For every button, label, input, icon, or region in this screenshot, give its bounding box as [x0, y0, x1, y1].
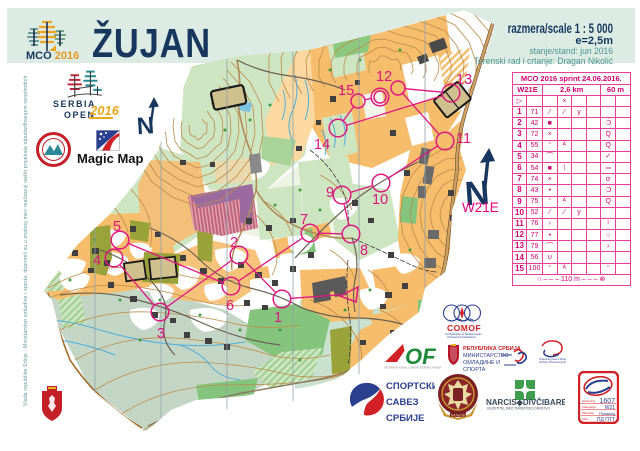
- svg-text:4: 4: [93, 253, 101, 269]
- svg-text:3: 3: [157, 326, 165, 342]
- svg-text:Klub: Klub: [582, 417, 588, 421]
- svg-text:МИНИСТАРСТВО: МИНИСТАРСТВО: [463, 353, 509, 359]
- svg-text:САВЕЗ: САВЕЗ: [386, 397, 419, 408]
- svg-text:5: 5: [113, 219, 121, 235]
- svg-text:10: 10: [372, 192, 388, 208]
- svg-text:COMOF: COMOF: [447, 323, 481, 333]
- svg-text:СПОРТСКИ: СПОРТСКИ: [386, 381, 435, 392]
- svg-text:Orienteering Federations: Orienteering Federations: [447, 335, 476, 339]
- svg-text:15: 15: [338, 83, 354, 99]
- svg-text:Kategorija: Kategorija: [582, 405, 596, 409]
- svg-text:2: 2: [230, 235, 238, 251]
- svg-text:6: 6: [226, 298, 234, 314]
- svg-text:9: 9: [326, 185, 334, 201]
- svg-text:1607: 1607: [599, 398, 615, 405]
- svg-text:8: 8: [360, 243, 368, 259]
- svg-text:INTERNATIONAL ORIENTEERING FED: INTERNATIONAL ORIENTEERING FEDERATION: [384, 366, 441, 370]
- svg-text:UGOSTITELJSKO TURISTIČKO DRUŠT: UGOSTITELJSKO TURISTIČKO DRUŠTVO: [487, 406, 551, 411]
- svg-text:ВАЉЕВО: ВАЉЕВО: [451, 414, 467, 418]
- svg-text:ПД ПТТ: ПД ПТТ: [597, 417, 615, 423]
- svg-text:12: 12: [376, 69, 392, 85]
- svg-text:ОМЛАДИНЕ И: ОМЛАДИНЕ И: [463, 360, 500, 366]
- svg-text:Serbian Orienteering Federatio: Serbian Orienteering Federation: [539, 360, 566, 364]
- svg-text:Takmičar: Takmičar: [582, 411, 594, 415]
- svg-text:1: 1: [274, 310, 282, 326]
- svg-text:7: 7: [300, 212, 308, 228]
- svg-text:РЕПУБЛИКА СРБИЈА: РЕПУБЛИКА СРБИЈА: [463, 346, 521, 352]
- svg-text:СРБИЈЕ: СРБИЈЕ: [386, 413, 424, 424]
- svg-text:N: N: [137, 112, 155, 135]
- svg-text:Karta broj: Karta broj: [582, 399, 595, 403]
- svg-text:13: 13: [456, 72, 472, 88]
- svg-text:14: 14: [314, 137, 330, 153]
- svg-text:11: 11: [456, 131, 471, 147]
